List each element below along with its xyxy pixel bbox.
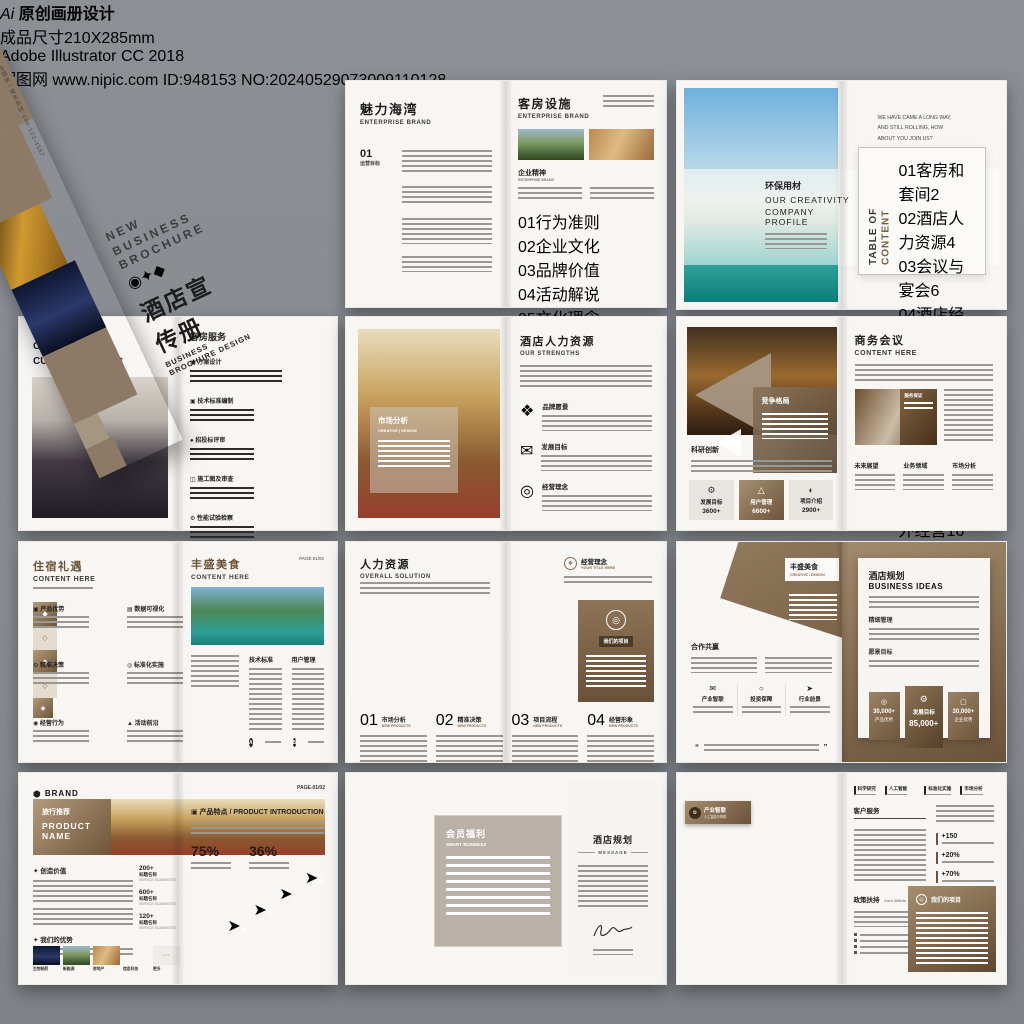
text-placeholder [292,668,325,730]
column: 技术标准 [249,655,282,730]
panel-label: 我们的项目 [599,636,632,647]
badge-icon: ◎ [869,698,900,706]
section-label: 运营目标 [360,160,394,167]
text-placeholder [190,409,254,423]
interior-photo [689,556,783,628]
text-placeholder [402,186,492,206]
text-placeholder [587,735,654,763]
overlay-title: 会员福利 [446,827,550,840]
recycle-icon: △ [744,485,779,496]
nav-row: 科学研究 人工智能 标准化实施 市场分析 [854,786,995,795]
doc-icon: ▣ [241,927,247,933]
text-placeholder [564,576,652,586]
text-placeholder [869,628,980,640]
text-placeholder [33,616,89,628]
card-title-cn: 酒店规划 [869,569,980,582]
spread-customer-service: ⚙ 产业智联 人工智能与物联 科学研究 人工智能 标准化实施 市场分析 客户服务 [676,772,1007,985]
overlay-title: 市场分析 [378,415,450,426]
text-placeholder [127,730,183,742]
section-title: 政策扶持 [854,897,880,904]
mini-column: 未来展望 [855,461,896,490]
text-placeholder [904,402,932,412]
section-title: ▣ 产品特点 / PRODUCT INTRODUCTION [191,807,324,817]
page-subtitle: ENTERPRISE BRAND [360,120,492,126]
text-placeholder [952,474,993,490]
cover-back-1 [5,0,86,22]
timeline-item: ◎ 标准化实施 [127,660,183,684]
panel-subtitle: MESSAGE [598,850,628,855]
section-title: 客户服务 [854,805,926,819]
spread-product-intro: ⬢ BRAND PAGE-01/02 旅行推荐 PRODUCT NAME ✦ 创… [18,772,338,985]
text-placeholder [916,912,988,964]
thumb-photo [93,946,120,965]
text-placeholder [942,842,994,845]
text-placeholder [446,856,550,920]
page-subtitle: OVERALL SOLUTION [360,574,480,580]
section-subtitle: ENTERPRISE BRAND [518,178,654,182]
photo-tag: ⚙ 产业智联 人工智能与物联 [685,801,751,824]
plus-stats: +150 +20% +70% [936,833,995,883]
page-title: 客房设施 [518,95,589,112]
hexagon-icon: ⬢ [33,789,41,800]
coffee-photo: 服务保证 [855,389,937,445]
service-item: ▣ 技术标准编制 [190,396,254,423]
feature-row: ✉ 产业智联 ○ 投资保障 ➤ 行业前景 [689,684,834,716]
pavilion-photo [691,875,753,941]
badge-size: 成品尺寸210X285mm [0,24,1024,48]
arrow-icon: ➤ [279,886,292,903]
toc-item: 03会议与宴会6 [899,253,976,301]
spread-business-meeting: 竞争格局 科研创新 ⚙ 发展目标 3600+ △ 用户管理 6600+ [676,316,1007,531]
numbered-item: 04 经营形象 NEW PRODUCTS [587,712,654,763]
toc-title: TABLE OF CONTENT [868,157,893,265]
text-placeholder [693,706,733,716]
badge-original-design: Ai 原创画册设计 [0,0,1024,24]
more-thumb: ··· [153,946,180,965]
text-placeholder [704,744,819,752]
text-placeholder [586,655,646,689]
text-placeholder [191,822,324,834]
text-placeholder [869,660,980,670]
text-placeholder [765,657,831,673]
stat: 120+ 标题名称 SERVICE GUARANTEE [139,913,181,930]
text-placeholder [790,706,830,716]
text-placeholder [854,829,926,881]
page-title: 酒店人力资源 [520,333,652,349]
service-item: ● 招投标评审 [190,435,254,462]
growth-towers: ➤▣ ➤⚙ ➤◎ ➤▩ [227,868,324,972]
chart-icon: ▩ [318,879,324,885]
chat-icon: ✉ [693,684,733,693]
numbered-item: 03 项目流程 NEW PRODUCTS [512,712,579,763]
page-subtitle: CONTENT HERE [33,576,164,583]
overlay-subtitle: CREATIVE | DESIGN [378,428,450,433]
feature-item: ❖ 品牌愿景 [520,401,652,431]
section-title: 科研创新 [691,445,832,455]
tower: ➤▣ [227,916,246,972]
gear-icon: ⚙ [694,485,729,496]
resort-photo [191,587,324,645]
page-title: 商务会议 [855,332,994,348]
text-placeholder [33,908,133,926]
card-title-en: BUSINESS IDEAS [869,582,980,591]
text-placeholder [190,526,254,540]
thumb-photo [33,946,60,965]
section-title: 企业精神 [518,168,654,178]
text-placeholder [603,95,654,109]
spread-charm-bay: 魅力海湾 ENTERPRISE BRAND 01 运营目标 客房设施 ENTER… [345,80,667,308]
intro-text: WE HAVE CAME A LONG WAY, AND STILL ROLLI… [878,113,993,144]
cover-back-2 [7,0,86,24]
org-chart-icon: ❖ [520,401,534,421]
slider-row: 02企业文化 [518,233,654,257]
right-header: ❖ 经营理念 YOUR TITLE HERE [564,556,652,586]
text-placeholder [691,460,832,473]
panel-title: 竞争格局 [762,396,828,406]
gear-icon: ⚙ [267,911,272,917]
title-box: 丰盛美食 CREATIVE / DESIGN [785,558,839,581]
timeline-item: ▤ 数据可视化 [127,604,183,628]
feature: ➤ 行业前景 [786,684,834,716]
text-placeholder [191,655,239,689]
plus-stat: +20% [936,852,995,864]
cover-front: ◎ YOUR LOGO Creative Design NEW BUSINESS… [0,32,183,479]
tower: ➤▩ [305,868,324,972]
text-placeholder [127,672,183,684]
column: 用户管理 [292,655,325,730]
stat-box: ◐ 项目介绍 2900+ [789,480,834,520]
text-placeholder [127,616,183,628]
text-placeholder [593,949,633,955]
toc-item: 02酒店人力资源4 [899,205,976,253]
arrow-icon: ➤ [227,918,240,935]
text-placeholder [512,735,579,763]
text-placeholder [190,487,254,501]
text-placeholder [33,880,133,902]
bottom-items: 01 市场分析 NEW PRODUCTS 02 精准决策 NEW PRODUCT… [360,712,654,763]
service-item: ⚙ 性能试验检察 [190,513,254,540]
page-subtitle: CONTENT HERE [855,350,994,357]
benefits-overlay: 会员福利 SMART BUSINESS [434,815,562,947]
photo-overlay-panel: 市场分析 CREATIVE | DESIGN [370,407,458,493]
stat-tiles: ◎ 30,000+ 产品优势 ⚙ 发展目标 85,000+ ▢ 30,000+ … [869,678,980,740]
text-placeholder [249,668,282,730]
timeline-item: ◉ 经营行为 [33,718,89,742]
toc-item: 01客房和套间2 [899,157,976,205]
lightbulb-icon: ○ [742,684,782,693]
person-icon: ◐ [794,485,829,495]
hex-node: ◇ [33,626,57,650]
arrow-icon: ➤ [305,870,318,887]
mini-column: 市场分析 [952,461,993,490]
text-placeholder [578,865,648,909]
plus-stat: +70% [936,871,995,883]
text-placeholder [402,218,492,244]
text-placeholder [33,672,89,684]
spread-stay-perks: 住宿礼遇 CONTENT HERE ◆ ◇ ◆ ◇ ◆ ▣ 产品优势 ▤ 数据可… [18,541,338,763]
white-card: 酒店规划 BUSINESS IDEAS 精细管理 愿景目标 ◎ 30,000+ … [858,558,991,738]
project-panel: ◎ 我们的项目 [578,600,654,702]
banner-label: 旅行推荐 PRODUCT NAME [33,799,111,855]
text-placeholder [33,587,93,592]
modern-house-photo [761,861,819,951]
spread-member-benefits: 会员福利 SMART BUSINESS ➤ 招商加盟 ◷ 产业智联 酒店规划 M… [345,772,667,985]
gear-icon: ⚙ [905,694,943,705]
header-ribbon: Ai 原创画册设计 成品尺寸210X285mm Adobe Illustrato… [0,0,1024,66]
text-placeholder [762,413,828,439]
text-placeholder [942,861,994,864]
percent-stat: 36% [249,843,289,870]
text-placeholder [944,389,994,443]
spread-company-profile: 环保用材 OUR CREATIVITY COMPANY PROFILE WE H… [676,80,1007,310]
target-icon: ◎ [916,894,927,905]
page-title: 丰盛美食 [191,556,249,572]
compass-icon: ❖ [564,557,577,570]
overlay-subtitle: SMART BUSINESS [446,842,550,847]
spread-business-ideas: 丰盛美食 CREATIVE / DESIGN 合作共赢 ✉ 产业智联 ○ [676,541,1007,763]
text-placeholder [691,657,757,673]
audience-photo [358,600,554,702]
garden-photo [518,129,584,160]
arrow-icon: ➤ [253,902,266,919]
text-placeholder [436,735,503,763]
text-placeholder [542,495,652,511]
signature [591,921,635,941]
text-placeholder [308,741,324,744]
thumb-photo [123,946,150,965]
service-item: ▣ 方案设计 [190,357,325,384]
stat-boxes: ⚙ 发展目标 3600+ △ 用户管理 6600+ ◐ 项目介绍 2900+ [689,480,834,520]
text-placeholder [520,365,652,389]
timeline-item: ▲ 活动前沿 [127,718,183,742]
text-placeholder [191,862,231,870]
hex-timeline: ◆ ◇ ◆ ◇ ◆ ▣ 产品优势 ▤ 数据可视化 ⚙ 精准决策 ◎ 标准化实施 [33,602,164,752]
text-placeholder [855,474,896,490]
text-placeholder [265,741,281,744]
stat-tile: ◎ 30,000+ 产品优势 [869,692,900,740]
monitor-icon: ▢ [948,698,979,706]
stat-box-highlight: △ 用户管理 6600+ [739,480,784,520]
thumb-photo [63,946,90,965]
toc-list: 01客房和套间2 02酒店人力资源4 03会议与宴会6 04酒店经营8 05商务… [899,157,976,265]
page-title: 魅力海湾 [360,99,492,118]
page-subtitle: CONTENT HERE [191,574,249,581]
page-subtitle: OUR STRENGTHS [520,351,652,357]
text-placeholder [190,370,282,384]
text-placeholder [542,415,652,431]
stat-tile: ▢ 30,000+ 企业优势 [948,692,979,740]
text-placeholder [903,474,944,490]
promo-canvas: Ai 原创画册设计 成品尺寸210X285mm Adobe Illustrato… [0,0,1024,1024]
stat: 200+ 标题名称 SERVICE GUARANTEE [139,865,181,882]
badge-software: Adobe Illustrator CC 2018 [0,48,1024,66]
feature: ○ 投资保障 [738,684,787,716]
plus-stat: +150 [936,833,995,845]
text-placeholder [360,735,427,763]
percent-stat: 75% [191,843,231,870]
text-placeholder [541,455,652,471]
target-icon: ◎ [520,481,534,501]
numbered-item: 01 市场分析 NEW PRODUCTS [360,712,427,763]
slider-row: 04活动解说 [518,281,654,305]
stat-tile-highlight: ⚙ 发展目标 85,000+ [905,686,943,748]
section-subtitle-en: Core Within [884,898,906,903]
thumb-strip: ··· 生物制药 新能源 房地产 信息科技 更多 [33,946,181,972]
toc-box: TABLE OF CONTENT 01客房和套间2 02酒店人力资源4 03会议… [858,147,986,275]
timeline-item: ⚙ 精准决策 [33,660,89,684]
page-subtitle: ENTERPRISE BRAND [518,114,589,120]
chat-icon: ✉ [520,441,533,461]
page-number: PAGE 01/02 [299,556,324,561]
section-number: 01 [360,148,394,160]
room-door-photo [589,129,655,160]
bullet-b: B [293,738,297,747]
text-placeholder [518,187,582,201]
aerial-resort-photo [703,787,819,867]
hex-node: ◆ [33,698,53,718]
slider-row: 01行为准则 [518,209,654,233]
text-placeholder [378,440,450,470]
pin-icon: ◎ [606,610,626,630]
tower: ➤◎ [279,884,298,972]
text-placeholder [402,150,492,172]
timeline-item: ▣ 产品优势 [33,604,89,628]
text-placeholder [742,706,782,716]
page-title: 人力资源 [360,556,480,572]
text-placeholder [190,448,254,462]
feature: ✉ 产业智联 [689,684,738,716]
text-placeholder [360,582,490,594]
text-placeholder [942,880,994,883]
chip-icon: ⚙ [689,807,701,819]
text-placeholder [33,730,89,742]
project-box: ◎ 我们的项目 [908,886,996,972]
spread-hr-strengths: 市场分析 CREATIVE | DESIGN 酒店人力资源 OUR STRENG… [345,316,667,531]
feature-item: ✉ 发展目标 [520,441,652,471]
stat: 600+ 标题名称 SERVICE GUARANTEE [139,889,181,906]
feature-item: ◎ 经营理念 [520,481,652,511]
text-placeholder [765,233,827,249]
service-item: ◫ 施工图及审查 [190,474,254,501]
target-icon: ◎ [293,895,298,901]
photo-caption: 服务保证 [900,389,936,445]
guarantee-stats: 200+ 标题名称 SERVICE GUARANTEE 600+ 标题名称 SE… [139,865,181,930]
text-placeholder [402,256,492,272]
slider-row: 03品牌价值 [518,257,654,281]
text-placeholder [855,364,994,382]
value-section: ✦ 创造价值 ✦ 我们的优势 [33,865,133,958]
spread-human-resources: 人力资源 OVERALL SOLUTION ❖ 经营理念 YOUR TITLE … [345,541,667,763]
text-placeholder [789,594,837,620]
text-placeholder [869,596,980,608]
stat-box: ⚙ 发展目标 3600+ [689,480,734,520]
section-title: 合作共赢 [691,642,832,652]
message-panel: 酒店规划 MESSAGE [568,781,658,976]
panel-title: 酒店规划 [578,833,648,846]
tower: ➤⚙ [253,900,272,972]
bullet-a: A [249,738,253,747]
mini-column: 业务领域 [903,461,944,490]
paper-plane-icon: ➤ [790,684,830,693]
quote-row: “ ” [695,743,828,752]
text-placeholder [936,805,995,825]
numbered-item: 02 精准决策 NEW PRODUCTS [436,712,503,763]
cover-stack: ◎ YOUR LOGO Creative Design NEW BUSINESS… [0,0,92,480]
page-title: 住宿礼遇 [33,558,164,574]
text-placeholder [590,187,654,201]
